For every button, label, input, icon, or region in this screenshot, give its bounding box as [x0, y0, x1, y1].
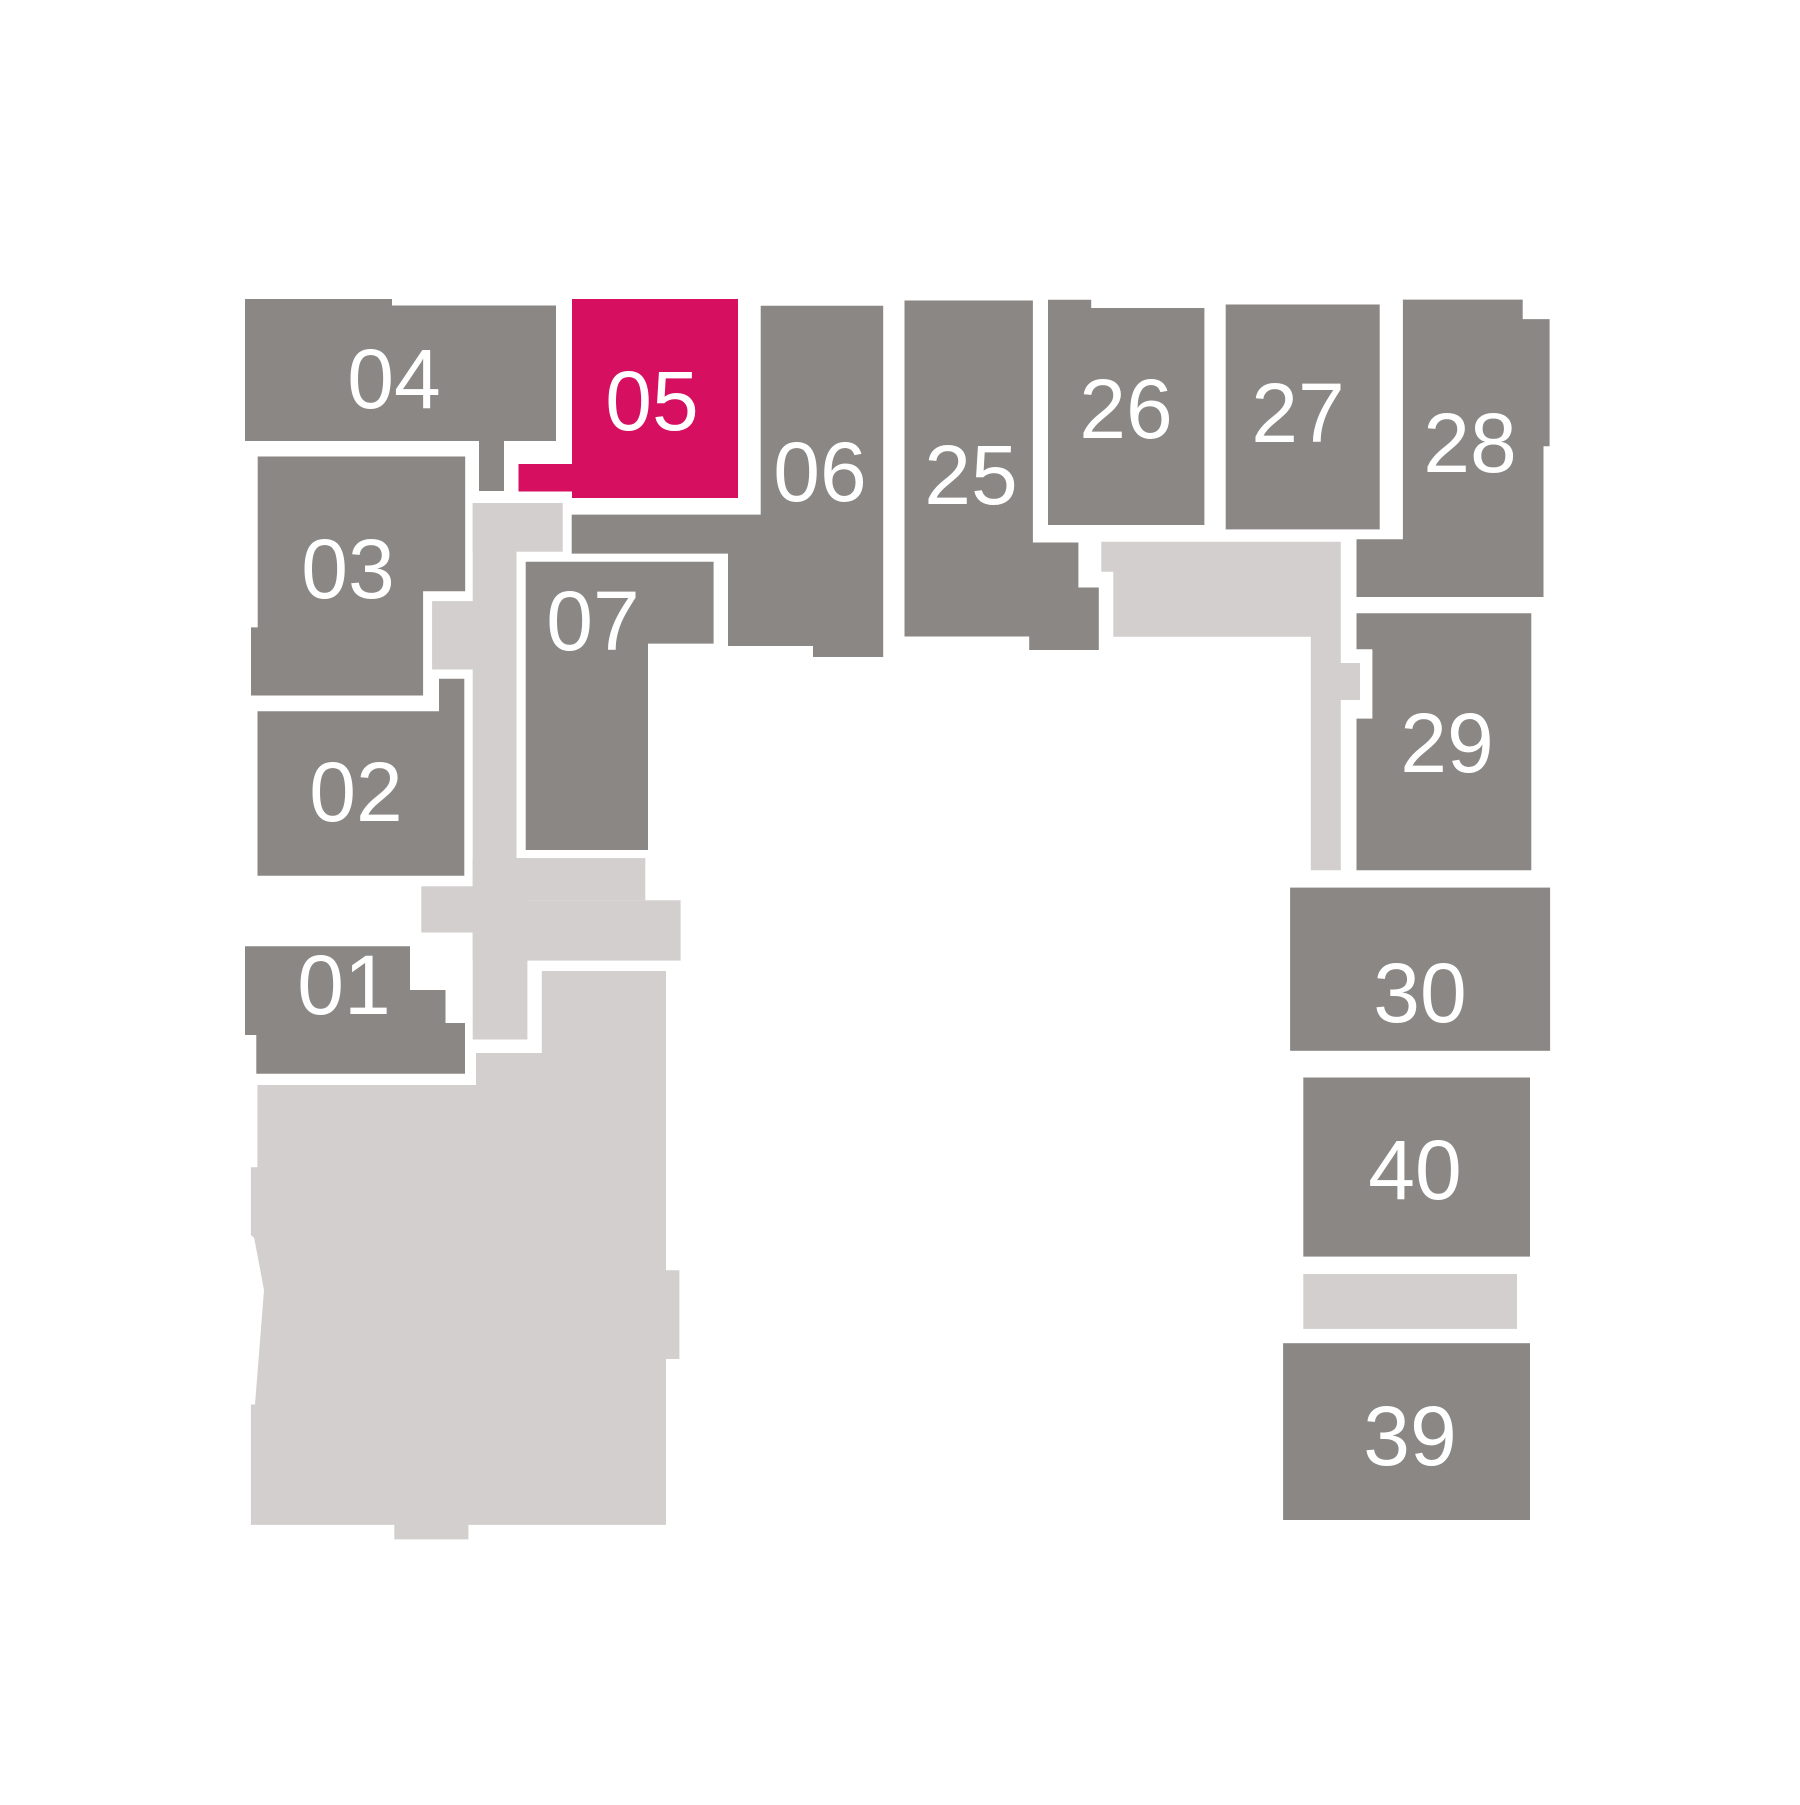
svg-text:01: 01	[297, 938, 390, 1032]
svg-text:03: 03	[301, 522, 394, 616]
svg-text:04: 04	[347, 332, 440, 426]
svg-text:02: 02	[309, 745, 402, 839]
svg-text:06: 06	[773, 425, 866, 519]
svg-text:28: 28	[1423, 396, 1516, 490]
svg-text:25: 25	[924, 428, 1017, 522]
svg-text:27: 27	[1251, 366, 1344, 460]
svg-text:40: 40	[1368, 1123, 1461, 1217]
svg-text:39: 39	[1363, 1389, 1456, 1483]
svg-text:05: 05	[605, 354, 698, 448]
svg-text:07: 07	[546, 574, 639, 668]
svg-text:29: 29	[1400, 696, 1493, 790]
svg-text:26: 26	[1079, 362, 1172, 456]
svg-text:30: 30	[1373, 946, 1466, 1040]
